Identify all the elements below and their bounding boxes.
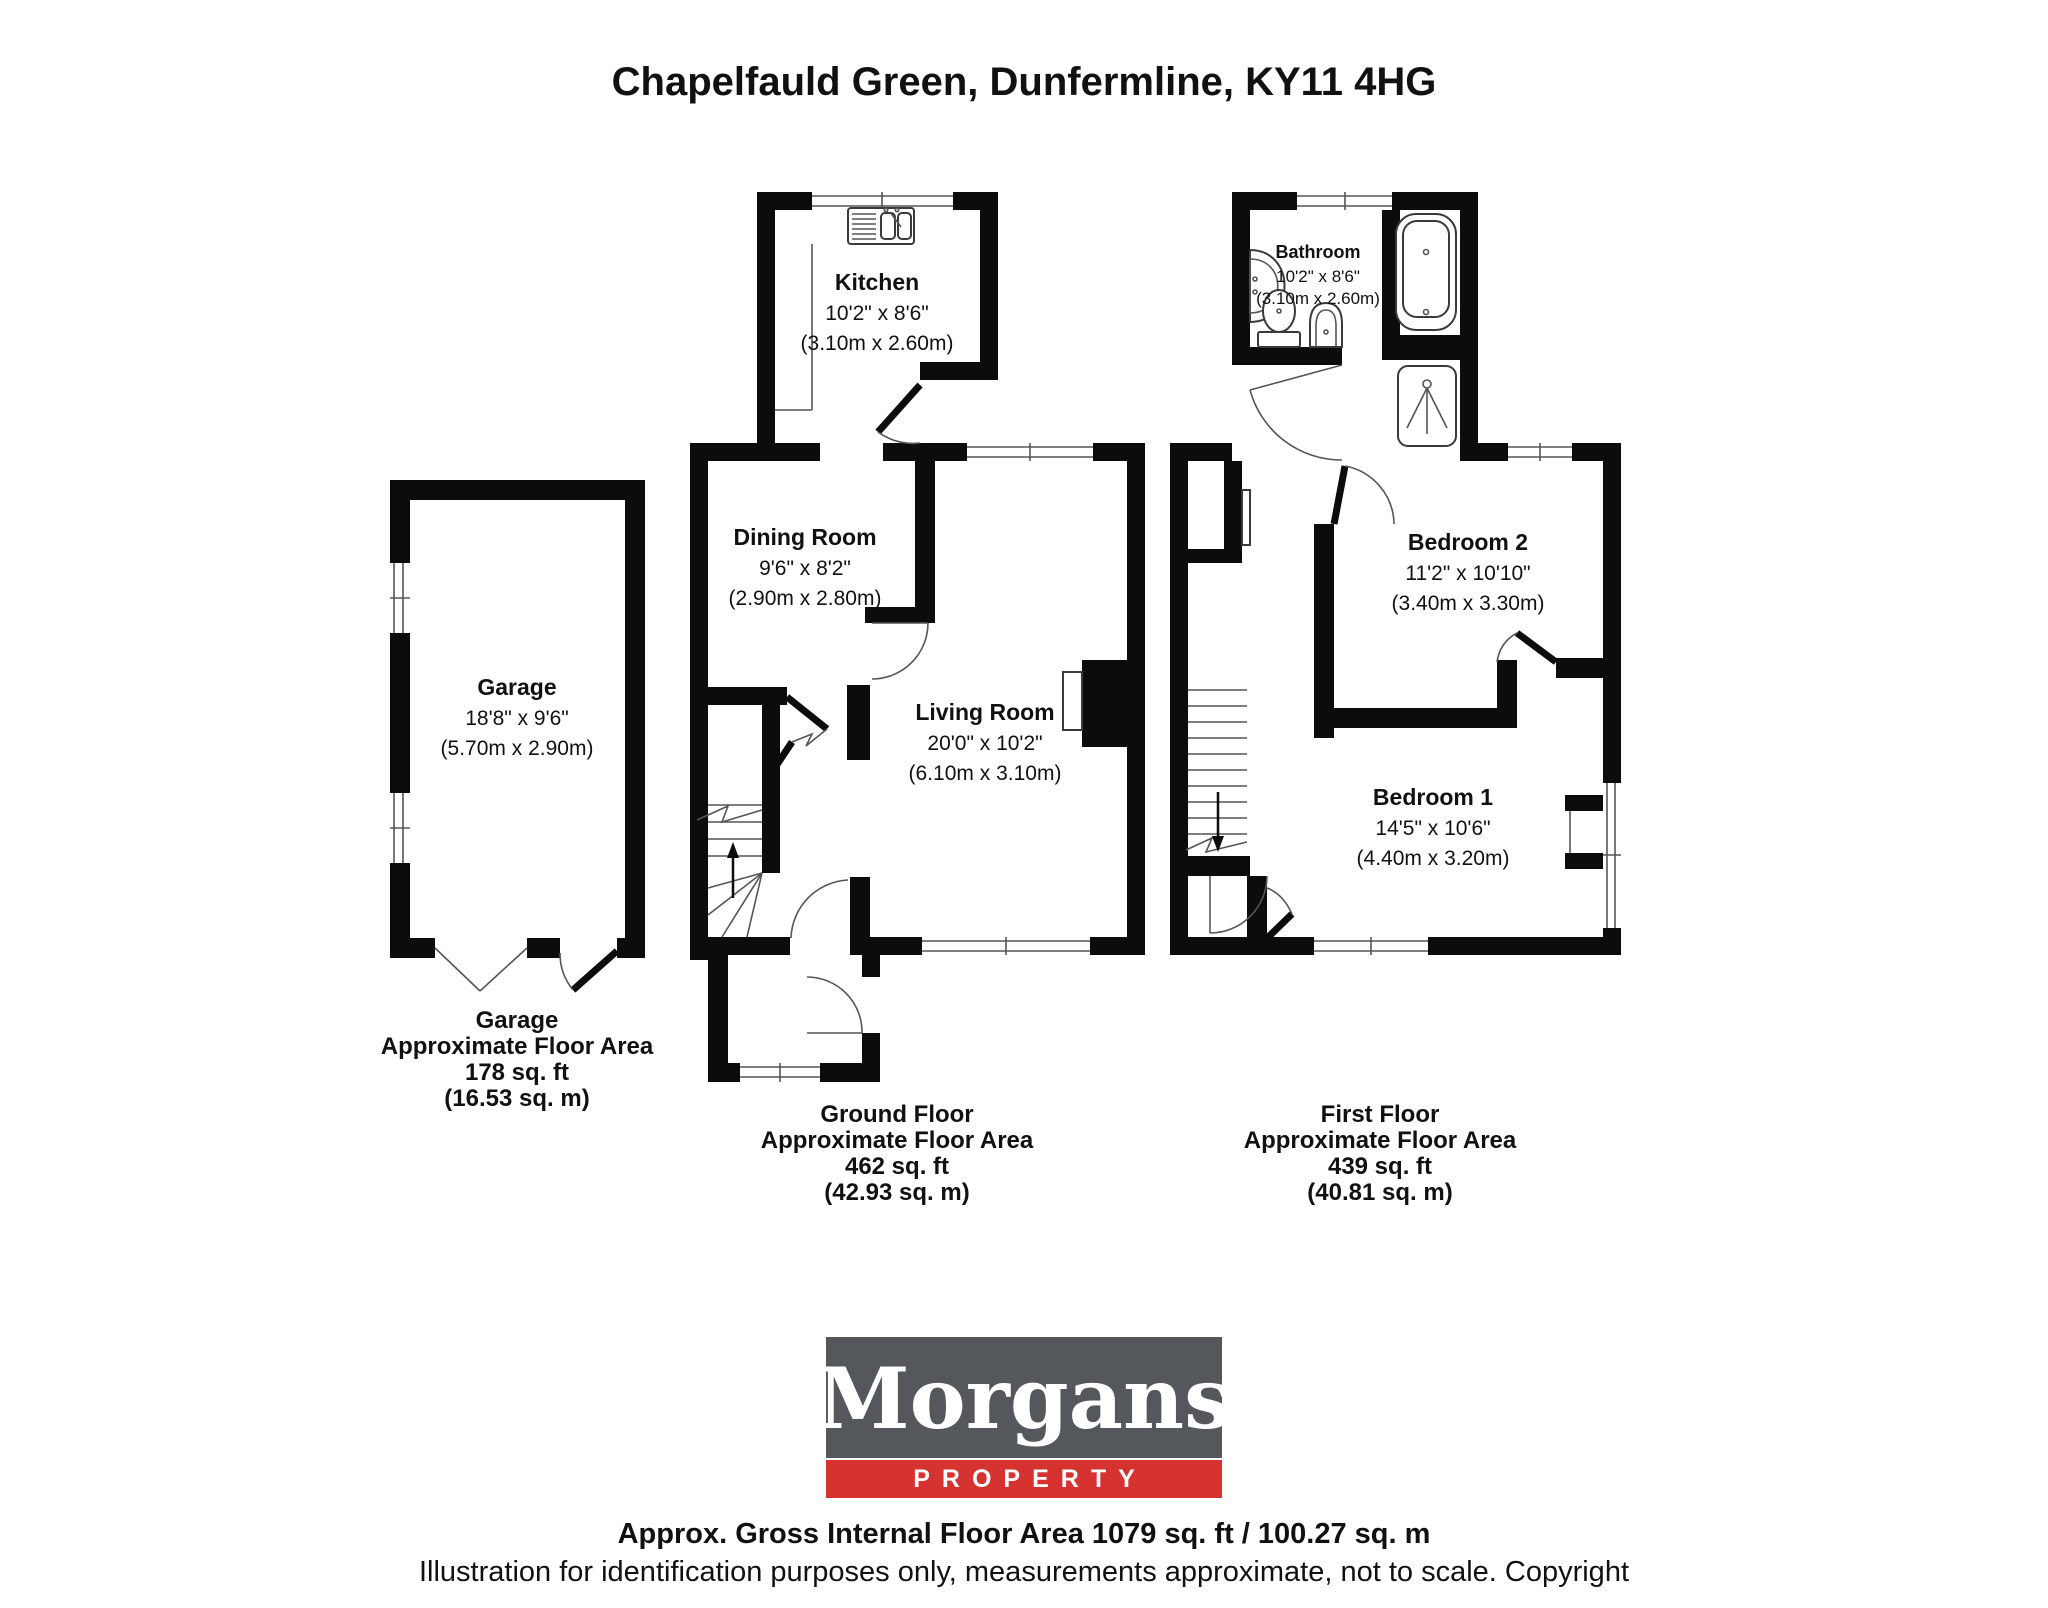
bedroom1-name: Bedroom 1 [1373, 784, 1493, 810]
first-area-line4: (40.81 sq. m) [1307, 1179, 1452, 1206]
bathroom-name: Bathroom [1276, 242, 1361, 262]
bath-icon [1396, 214, 1456, 330]
kitchen-dims-m: (3.10m x 2.60m) [801, 332, 954, 355]
footer-disclaimer: Illustration for identification purposes… [419, 1556, 1629, 1588]
logo-division-text: PROPERTY [913, 1465, 1147, 1493]
bedroom2-dims-ft: 11'2" x 10'10" [1405, 562, 1530, 585]
bedroom1-dims-m: (4.40m x 3.20m) [1357, 847, 1510, 870]
bedroom2-closet-door-icon [1497, 633, 1556, 662]
garage-area-summary: Garage Approximate Floor Area 178 sq. ft… [381, 1007, 654, 1112]
bedroom2-label: Bedroom 2 11'2" x 10'10" (3.40m x 3.30m) [1392, 529, 1545, 615]
kitchen-door-icon [878, 385, 920, 443]
kitchen-label: Kitchen 10'2" x 8'6" (3.10m x 2.60m) [801, 269, 954, 355]
logo-brand-text: Morgans [817, 1349, 1232, 1448]
bathroom-dims-m: (3.10m x 2.60m) [1256, 289, 1380, 308]
bedroom1-dims-ft: 14'5" x 10'6" [1375, 817, 1490, 840]
living-name: Living Room [915, 699, 1054, 725]
garage-door-icon [435, 948, 527, 991]
first-area-line2: Approximate Floor Area [1244, 1127, 1517, 1154]
kitchen-name: Kitchen [835, 269, 919, 295]
kitchen-dims-ft: 10'2" x 8'6" [825, 302, 929, 325]
ground-floor-plan: Kitchen 10'2" x 8'6" (3.10m x 2.60m) Din… [690, 192, 1145, 1082]
living-room-label: Living Room 20'0" x 10'2" (6.10m x 3.10m… [909, 699, 1062, 785]
dining-room-label: Dining Room 9'6" x 8'2" (2.90m x 2.80m) [729, 524, 882, 610]
living-dims-m: (6.10m x 3.10m) [909, 762, 1062, 785]
garage-dims-ft: 18'8" x 9'6" [465, 707, 569, 730]
dining-living-door-icon [872, 623, 928, 679]
kitchen-counter-icon [775, 244, 812, 410]
ground-area-line4: (42.93 sq. m) [824, 1179, 969, 1206]
stairs-up-arrow-icon [727, 842, 739, 858]
garage-area-line2: Approximate Floor Area [381, 1033, 654, 1060]
garage-name: Garage [477, 674, 556, 700]
first-area-line3: 439 sq. ft [1328, 1153, 1432, 1180]
footer-area-total: Approx. Gross Internal Floor Area 1079 s… [618, 1518, 1431, 1550]
dining-name: Dining Room [733, 524, 876, 550]
bidet-icon [1310, 303, 1342, 347]
bedroom2-name: Bedroom 2 [1408, 529, 1528, 555]
garage-side-door-icon [560, 951, 617, 990]
bedroom1-label: Bedroom 1 14'5" x 10'6" (4.40m x 3.20m) [1357, 784, 1510, 870]
dining-dims-ft: 9'6" x 8'2" [759, 557, 851, 580]
landing-alcove-icon [1242, 490, 1250, 545]
agency-logo: Morgans PROPERTY [817, 1337, 1232, 1498]
hall-window-icon [740, 1063, 820, 1082]
first-floor-area-summary: First Floor Approximate Floor Area 439 s… [1244, 1101, 1517, 1206]
garage-area-line1: Garage [476, 1007, 559, 1034]
dining-dims-m: (2.90m x 2.80m) [729, 587, 882, 610]
floorplan-canvas: Chapelfauld Green, Dunfermline, KY11 4HG [0, 0, 2048, 1608]
garage-area-line3: 178 sq. ft [465, 1059, 569, 1086]
ground-area-line3: 462 sq. ft [845, 1153, 949, 1180]
garage-dims-m: (5.70m x 2.90m) [441, 737, 594, 760]
kitchen-sink-icon [848, 208, 914, 244]
bathroom-window-icon [1297, 192, 1392, 210]
hall-living-door-icon [791, 880, 848, 938]
ground-floor-walls [690, 192, 1145, 1082]
footer: Approx. Gross Internal Floor Area 1079 s… [419, 1518, 1629, 1588]
garage-label: Garage 18'8" x 9'6" (5.70m x 2.90m) [441, 674, 594, 760]
shower-icon [1398, 366, 1456, 446]
bathroom-door-icon [1250, 365, 1342, 460]
bathroom-dims-ft: 10'2" x 8'6" [1276, 267, 1360, 286]
front-door-icon [807, 977, 862, 1033]
garage-plan: Garage 18'8" x 9'6" (5.70m x 2.90m) [390, 480, 645, 991]
bedroom2-dims-m: (3.40m x 3.30m) [1392, 592, 1545, 615]
ground-area-line2: Approximate Floor Area [761, 1127, 1034, 1154]
fireplace-hearth-icon [1063, 672, 1082, 730]
living-dims-ft: 20'0" x 10'2" [927, 732, 1042, 755]
ground-floor-area-summary: Ground Floor Approximate Floor Area 462 … [761, 1101, 1034, 1206]
first-area-line1: First Floor [1321, 1101, 1440, 1128]
garage-area-line4: (16.53 sq. m) [444, 1085, 589, 1112]
first-floor-stairs [1186, 690, 1247, 852]
first-floor-plan: Bathroom 10'2" x 8'6" (3.10m x 2.60m) Be… [1170, 192, 1621, 955]
bedroom2-door-icon [1334, 466, 1394, 524]
floorplan-page: Chapelfauld Green, Dunfermline, KY11 4HG [0, 0, 2048, 1608]
bedroom2-window-icon [1508, 443, 1572, 461]
page-title: Chapelfauld Green, Dunfermline, KY11 4HG [612, 60, 1437, 104]
ground-area-line1: Ground Floor [820, 1101, 973, 1128]
